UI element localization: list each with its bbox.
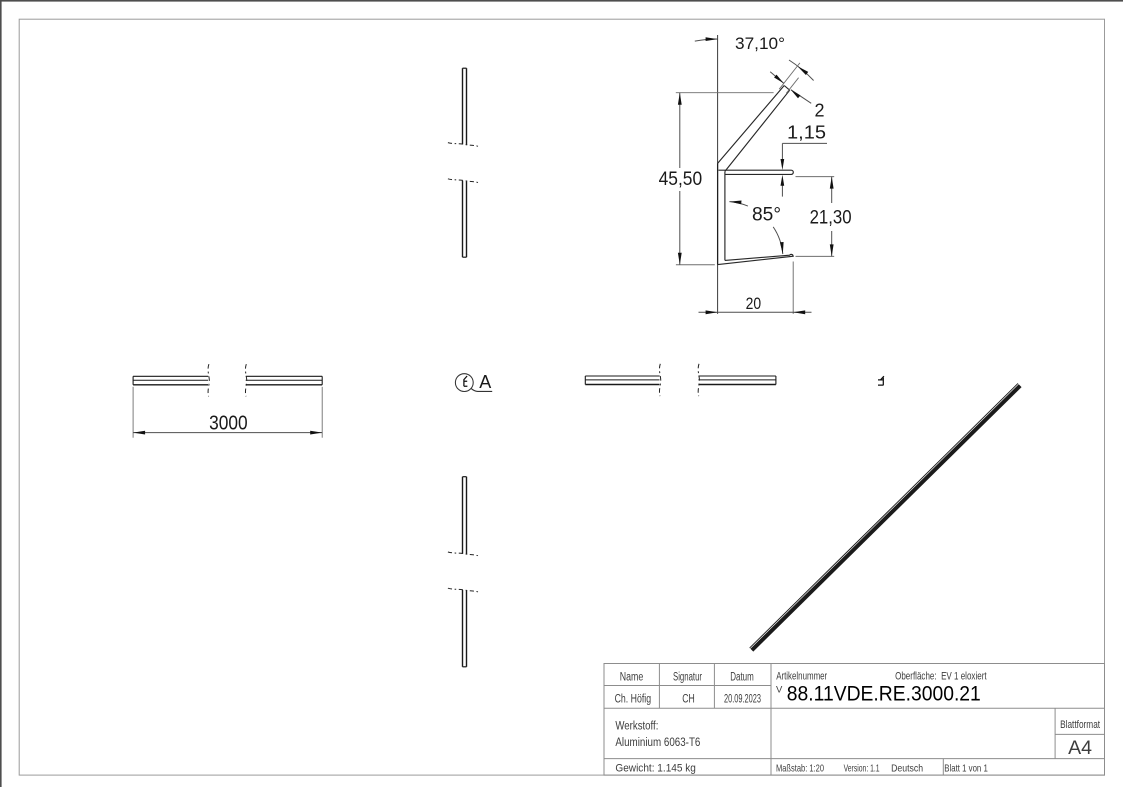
svg-text:Werkstoff:: Werkstoff:	[615, 721, 658, 733]
svg-text:Aluminium 6063-T6: Aluminium 6063-T6	[615, 737, 700, 749]
svg-text:45,50: 45,50	[659, 169, 703, 190]
svg-text:37,10°: 37,10°	[735, 34, 785, 53]
svg-text:V: V	[776, 684, 783, 695]
svg-text:A: A	[479, 372, 491, 392]
svg-text:20: 20	[746, 294, 762, 313]
svg-text:Name: Name	[620, 672, 644, 684]
svg-text:88.11VDE.RE.3000.21: 88.11VDE.RE.3000.21	[787, 682, 981, 706]
svg-text:21,30: 21,30	[810, 207, 852, 228]
svg-text:1,15: 1,15	[787, 123, 826, 143]
svg-text:2: 2	[814, 100, 824, 120]
svg-text:Signatur: Signatur	[673, 672, 702, 684]
svg-text:Gewicht: 1.145 kg: Gewicht: 1.145 kg	[615, 763, 696, 775]
svg-text:Blattformat: Blattformat	[1060, 719, 1100, 731]
svg-text:A4: A4	[1068, 737, 1092, 759]
svg-text:Maßstab: 1:20: Maßstab: 1:20	[776, 763, 824, 775]
svg-text:Ch. Höfig: Ch. Höfig	[615, 694, 652, 706]
svg-text:Blatt 1 von 1: Blatt 1 von 1	[944, 763, 988, 775]
svg-text:CH: CH	[682, 694, 695, 706]
svg-text:20.09.2023: 20.09.2023	[724, 694, 761, 706]
svg-text:Deutsch: Deutsch	[891, 763, 923, 775]
svg-text:3000: 3000	[209, 413, 248, 435]
svg-text:85°: 85°	[752, 204, 781, 225]
svg-text:Version: 1.1: Version: 1.1	[844, 763, 880, 775]
svg-text:Datum: Datum	[730, 672, 754, 684]
